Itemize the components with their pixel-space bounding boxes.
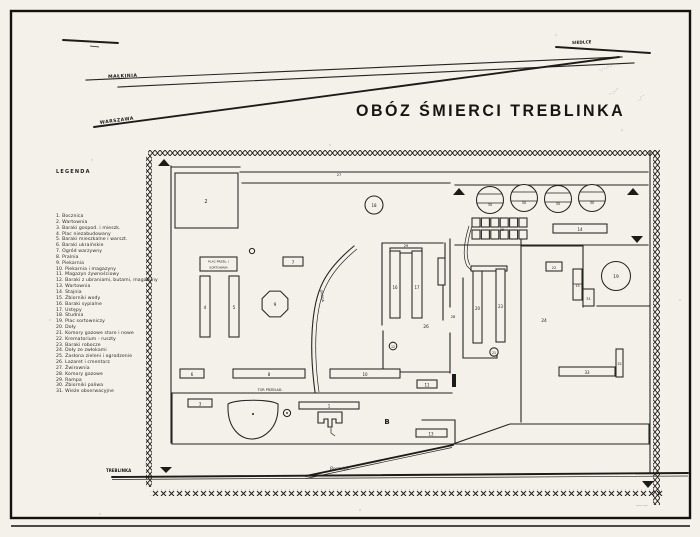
handwritten-annotation: ·.··. (637, 93, 646, 103)
label-4: 4 (204, 305, 207, 310)
label-8: 8 (268, 372, 271, 377)
sort-box-line1: PLAC PRZEŁ. I (208, 260, 229, 264)
watchtower-icon (453, 188, 465, 195)
station-label: TREBLINKA (106, 468, 132, 473)
label-22: 22 (552, 265, 557, 270)
label-5: 5 (233, 305, 236, 310)
label-2: 2 (204, 199, 207, 205)
label-18: 18 (371, 203, 377, 208)
fence-right (653, 150, 660, 505)
label-30: 30 (488, 203, 492, 207)
label-26: 26 (423, 324, 429, 330)
platform-label: TOR PRZEŁAD. (257, 388, 283, 392)
road-label: DROGA (319, 289, 325, 302)
label-20: 20 (475, 306, 481, 311)
label-7: 7 (292, 260, 295, 265)
label-30: 30 (556, 202, 560, 206)
fence-top (148, 150, 660, 156)
label-32: 32 (617, 362, 621, 366)
label-23: 23 (498, 304, 504, 309)
fence-bottom-xrow (150, 489, 663, 496)
label-12: 12 (391, 345, 395, 349)
handwritten-annotation: —···— (636, 503, 648, 508)
watchtower-icon (642, 481, 654, 488)
label-30: 30 (590, 201, 594, 205)
siedlce-label: SIEDLCE (572, 39, 592, 45)
bottom-railway (112, 445, 688, 480)
label-15: 15 (575, 284, 579, 288)
label-19: 19 (613, 274, 619, 280)
label-6: 6 (191, 372, 194, 377)
legend-heading: LEGENDA (56, 169, 91, 175)
watchtower-icon (160, 467, 172, 473)
handwritten-annotation: ··.·.·· (608, 86, 621, 97)
watchtower-icon (158, 159, 170, 166)
handwritten-annotation: ···· (143, 461, 148, 466)
legend-list: 1. Bocznica2. Wartownia3. Baraki gospod.… (56, 214, 158, 395)
fuel-tanks (477, 185, 606, 214)
annex-building (438, 258, 445, 285)
label-29: 29 (404, 244, 409, 248)
watchtower-icon (627, 188, 639, 195)
dome-structure (228, 400, 278, 439)
small-well (249, 248, 254, 253)
bracket-structure (318, 412, 342, 427)
label-27: 27 (337, 173, 342, 177)
label-11: 11 (424, 383, 430, 388)
label-30: 30 (522, 201, 526, 205)
label-31: 31 (586, 296, 591, 301)
scanned-map-page: 2 18 30 30 30 30 25 14 27 7 4 5 9 6 8 10… (0, 0, 700, 537)
malkinia-label: MAŁKINIA (108, 73, 138, 80)
bocznica-label: Bocznica (330, 466, 349, 471)
legend-item: 31. Wieże obserwacyjne (56, 389, 158, 395)
watchtower-icon (631, 236, 643, 243)
label-9: 9 (274, 302, 277, 307)
label-3: 3 (199, 402, 202, 407)
gate-post (452, 374, 456, 387)
label-25: 25 (500, 228, 504, 232)
sort-box-line2: SORTOWNIA (209, 266, 228, 270)
label-1: 1 (328, 404, 331, 409)
label-17: 17 (414, 285, 420, 290)
label-letter-b: B (384, 418, 389, 426)
label-13: 13 (428, 432, 434, 437)
label-10: 10 (362, 372, 368, 377)
label-24: 24 (541, 318, 547, 324)
label-21: 21 (492, 351, 496, 355)
label-33: 33 (584, 370, 590, 375)
camp-buildings (175, 173, 631, 439)
label-28: 28 (451, 315, 456, 319)
stray-stroke (63, 40, 118, 43)
label-14: 14 (577, 227, 583, 232)
rail-to-siedlce (556, 47, 650, 53)
map-title: OBÓZ ŚMIERCI TREBLINKA (356, 102, 596, 121)
label-16: 16 (392, 285, 398, 290)
